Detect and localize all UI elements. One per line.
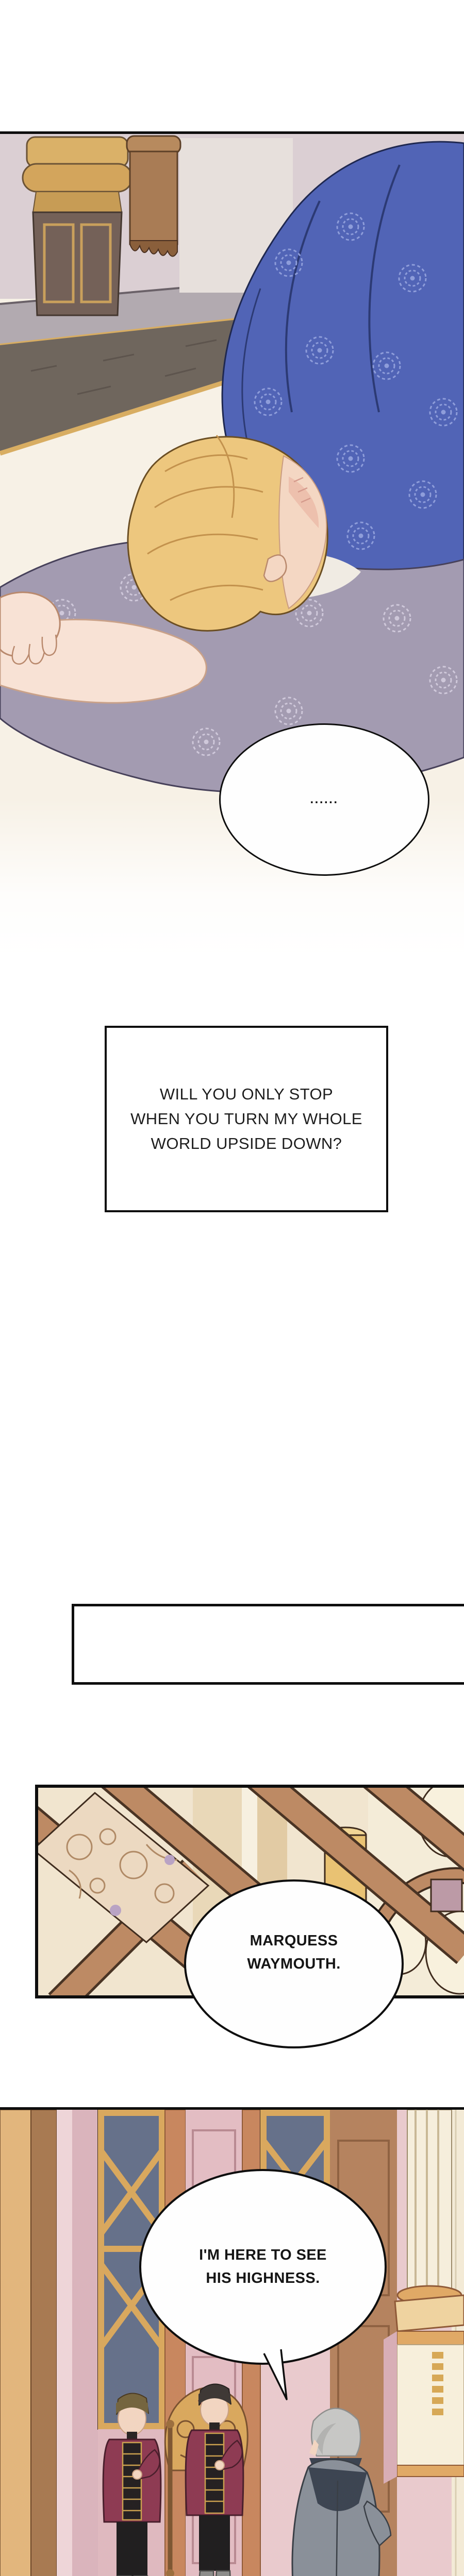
speech-bubble-highness-tail <box>247 2339 309 2409</box>
empty-narration-box <box>72 1604 464 1685</box>
speech-bubble-highness-text: I'M HERE TO SEE HIS HIGHNESS. <box>199 2244 327 2290</box>
narration-box: WILL YOU ONLY STOP WHEN YOU TURN MY WHOL… <box>105 1026 388 1212</box>
gold-pillar-base <box>23 137 132 315</box>
speech-bubble-marquess: MARQUESS WAYMOUTH. <box>184 1879 404 2048</box>
left-pillars <box>0 2110 98 2576</box>
speech-bubble-highness: I'M HERE TO SEE HIS HIGHNESS. <box>139 2169 387 2365</box>
brown-pillar <box>127 136 180 257</box>
webtoon-page: ...... WILL YOU ONLY STOP WHEN YOU TURN … <box>0 0 464 2576</box>
narration-text: WILL YOU ONLY STOP WHEN YOU TURN MY WHOL… <box>130 1082 362 1156</box>
mauve-block <box>431 1879 462 1911</box>
speech-bubble-silence: ...... <box>219 723 429 876</box>
speech-bubble-silence-text: ...... <box>310 792 338 807</box>
blonde-head <box>128 435 327 631</box>
speech-bubble-marquess-text: MARQUESS WAYMOUTH. <box>247 1929 340 1976</box>
